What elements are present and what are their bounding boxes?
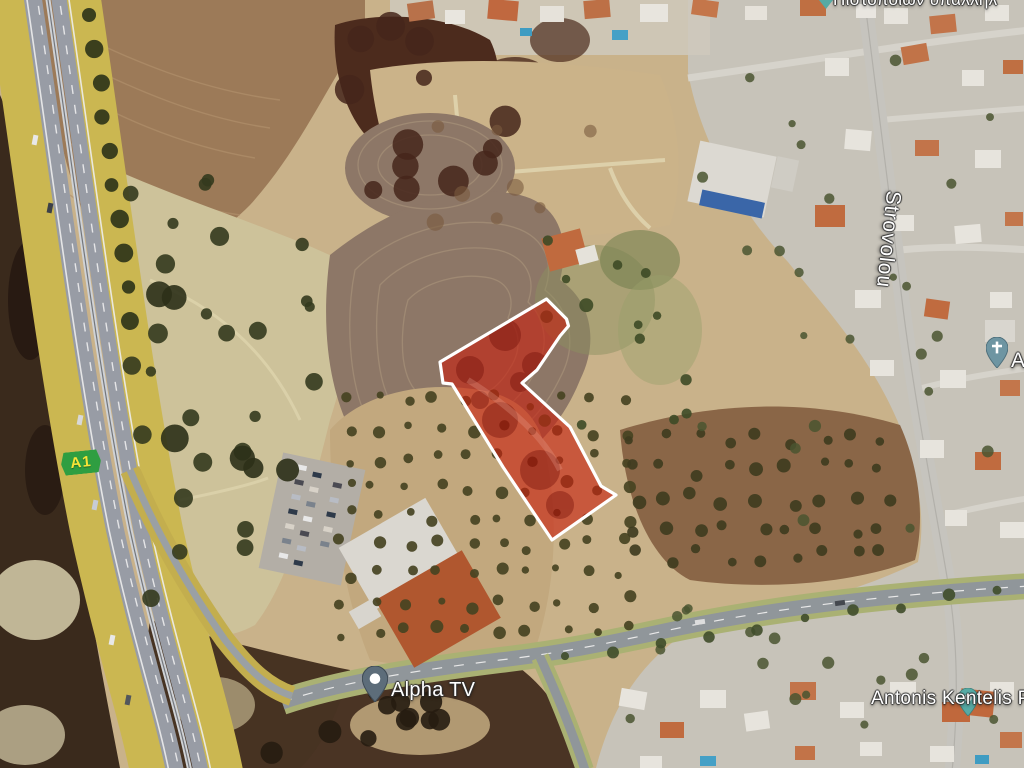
tree: [162, 285, 187, 310]
tree: [470, 515, 480, 525]
tree: [398, 622, 409, 633]
tree: [683, 487, 696, 500]
tree: [122, 280, 135, 293]
tree: [394, 176, 420, 202]
tree: [565, 625, 573, 633]
tree: [790, 500, 802, 512]
tree: [237, 539, 254, 556]
building: [870, 360, 894, 376]
tree: [798, 514, 810, 526]
tree: [123, 186, 139, 202]
building: [945, 510, 967, 526]
tree: [896, 604, 906, 614]
building: [583, 0, 610, 19]
building: [612, 30, 628, 40]
building: [640, 4, 668, 22]
tree: [373, 597, 382, 606]
building: [745, 6, 767, 20]
tree: [777, 459, 791, 473]
building: [1000, 732, 1022, 748]
building: [1000, 380, 1020, 396]
tree: [851, 492, 864, 505]
tree: [430, 620, 443, 633]
building: [962, 70, 984, 86]
building: [860, 742, 882, 756]
tree: [347, 426, 357, 436]
tree: [348, 479, 356, 487]
tree: [624, 621, 634, 631]
tree: [374, 536, 386, 548]
tree: [85, 40, 103, 58]
tree: [522, 546, 531, 555]
tree: [237, 521, 254, 538]
cross-icon: [992, 345, 1002, 348]
tree: [582, 535, 591, 544]
tree: [492, 125, 503, 136]
pin-hole: [370, 673, 381, 684]
tree: [400, 483, 407, 490]
satellite-map[interactable]: Πιστοποιών υπαλλήλ A1 Strovolou A Antoni…: [0, 0, 1024, 768]
tree: [434, 450, 443, 459]
tree: [552, 564, 559, 571]
tree: [529, 601, 539, 611]
tree: [717, 520, 727, 530]
tree: [333, 533, 344, 544]
tree: [559, 539, 570, 550]
tree: [93, 74, 110, 91]
building: [940, 370, 966, 388]
tree: [174, 489, 193, 508]
tree: [854, 546, 865, 557]
tree: [460, 624, 469, 633]
tree: [634, 320, 643, 329]
tree: [123, 356, 141, 374]
tree: [82, 8, 96, 22]
tree: [318, 720, 341, 743]
tree: [404, 422, 412, 430]
tree: [493, 515, 501, 523]
tree: [416, 70, 432, 86]
tree: [905, 524, 914, 533]
tree: [812, 495, 825, 508]
tree: [809, 420, 821, 432]
building: [700, 756, 716, 766]
tree: [653, 459, 663, 469]
tree: [110, 210, 128, 228]
tree: [182, 409, 199, 426]
cross-icon: [996, 342, 999, 354]
tree: [584, 125, 597, 138]
tree: [615, 572, 622, 579]
tree: [821, 458, 829, 466]
tree: [334, 600, 344, 610]
tree: [993, 586, 1002, 595]
tree: [902, 282, 911, 291]
tree: [524, 515, 536, 527]
tree: [824, 436, 833, 445]
tree: [624, 481, 636, 493]
tree: [584, 565, 595, 576]
tree: [943, 589, 955, 601]
tree: [793, 554, 802, 563]
tree: [534, 202, 545, 213]
tree: [518, 625, 530, 637]
building: [990, 292, 1012, 308]
building: [884, 8, 908, 24]
tree: [800, 332, 807, 339]
tree: [156, 254, 175, 273]
tree: [919, 653, 930, 664]
tree: [626, 714, 635, 723]
tree: [769, 633, 781, 645]
building: [487, 0, 519, 21]
route-badge-a1: A1: [60, 449, 102, 476]
tree: [876, 675, 885, 684]
tree: [749, 462, 763, 476]
tree: [871, 523, 882, 534]
top-edge-poi-pin-tip[interactable]: [819, 0, 833, 9]
tree: [624, 590, 636, 602]
tree: [94, 109, 109, 124]
tree: [607, 647, 619, 659]
tree: [493, 626, 506, 639]
building: [407, 0, 435, 21]
tree: [142, 589, 160, 607]
tree: [337, 634, 344, 641]
tree: [335, 75, 364, 104]
tree: [366, 481, 374, 489]
tree: [667, 557, 678, 568]
tree: [847, 604, 859, 616]
tree: [491, 212, 503, 224]
tree: [470, 538, 481, 549]
tree: [754, 555, 766, 567]
tree: [697, 422, 706, 431]
building: [825, 58, 849, 76]
tree: [816, 545, 827, 556]
tree: [199, 178, 212, 191]
tree: [660, 522, 673, 535]
tree: [305, 373, 323, 391]
building: [640, 756, 662, 768]
top-edge-poi-label[interactable]: Πιστοποιών υπαλλήλ: [833, 0, 997, 10]
tree: [757, 658, 768, 669]
tree: [624, 516, 636, 528]
tree: [364, 181, 382, 199]
alpha-tv-pin[interactable]: [362, 666, 388, 702]
tree: [801, 614, 809, 622]
tree: [431, 534, 443, 546]
tree: [437, 423, 446, 432]
tree: [872, 464, 881, 473]
tree: [613, 260, 623, 270]
tree: [860, 721, 868, 729]
tree: [375, 457, 386, 468]
tree: [425, 391, 437, 403]
tree: [346, 460, 353, 467]
tree: [691, 544, 700, 553]
tree: [421, 711, 439, 729]
tree: [844, 459, 853, 468]
tree: [193, 453, 212, 472]
tree: [172, 544, 187, 559]
tree: [845, 334, 854, 343]
tree: [360, 730, 376, 746]
tree: [507, 179, 524, 196]
tree: [376, 629, 385, 638]
tree: [461, 449, 471, 459]
tree: [148, 324, 168, 344]
tree: [102, 143, 118, 159]
tree: [400, 708, 420, 728]
tree: [377, 391, 384, 398]
tree: [210, 227, 229, 246]
tree: [728, 558, 737, 567]
church-poi-pin[interactable]: [986, 337, 1008, 368]
tree: [635, 334, 645, 344]
tree: [347, 26, 374, 53]
tree: [392, 153, 418, 179]
tree: [625, 436, 633, 444]
building: [1005, 212, 1023, 226]
building: [929, 14, 957, 35]
satellite-canvas[interactable]: [0, 0, 1024, 768]
tree: [621, 395, 631, 405]
tree: [427, 214, 444, 231]
building: [540, 6, 564, 22]
tree: [561, 652, 569, 660]
tree: [295, 238, 308, 251]
tree: [627, 527, 638, 538]
tree: [684, 604, 693, 613]
tree: [588, 430, 599, 441]
tree: [408, 566, 418, 576]
building: [1003, 60, 1023, 74]
tree: [347, 505, 356, 514]
tree: [989, 715, 998, 724]
tree: [932, 331, 943, 342]
tree: [946, 179, 956, 189]
tree: [201, 308, 212, 319]
tree: [916, 349, 927, 360]
tree: [629, 544, 640, 555]
tree: [745, 73, 754, 82]
tree: [844, 428, 856, 440]
tree: [748, 428, 760, 440]
tree: [276, 459, 299, 482]
tree: [695, 524, 708, 537]
tree: [114, 244, 133, 263]
tree: [748, 494, 762, 508]
tree: [430, 565, 440, 575]
tree: [789, 693, 801, 705]
tree: [373, 426, 385, 438]
tree: [890, 55, 902, 67]
tree: [133, 425, 152, 444]
tree: [633, 496, 647, 510]
tree: [562, 275, 570, 283]
building: [975, 755, 989, 764]
tree: [641, 268, 651, 278]
tree: [876, 437, 885, 446]
tree: [872, 544, 884, 556]
building: [1000, 522, 1024, 538]
tree: [774, 246, 785, 257]
tree: [627, 459, 638, 470]
tree: [790, 443, 801, 454]
tree: [405, 27, 434, 56]
tree: [594, 628, 602, 636]
tree: [822, 657, 834, 669]
tree: [243, 458, 263, 478]
building: [445, 10, 465, 24]
tree: [802, 691, 810, 699]
building: [815, 205, 845, 227]
tree: [372, 565, 382, 575]
tree: [662, 429, 672, 439]
tree: [682, 408, 692, 418]
tree: [218, 325, 235, 342]
tree: [400, 599, 411, 610]
tree: [161, 424, 189, 452]
alpha-tv-label[interactable]: Alpha TV: [391, 679, 475, 702]
tree: [466, 602, 478, 614]
tree: [543, 235, 553, 245]
tree: [760, 523, 772, 535]
tree: [407, 508, 415, 516]
tree: [672, 611, 682, 621]
tree: [669, 415, 679, 425]
building: [975, 150, 1001, 168]
tree: [590, 449, 599, 458]
tree: [454, 186, 470, 202]
tree: [374, 510, 383, 519]
building: [844, 129, 872, 151]
tree: [579, 298, 593, 312]
tree: [403, 453, 413, 463]
building: [954, 224, 981, 244]
building: [795, 746, 815, 760]
tree: [249, 411, 260, 422]
building: [920, 440, 944, 458]
tree: [853, 530, 862, 539]
tree: [794, 268, 803, 277]
tree: [824, 193, 834, 203]
tree: [432, 120, 445, 133]
tree: [121, 312, 139, 330]
tree: [703, 631, 715, 643]
tree: [884, 494, 896, 506]
tree: [470, 569, 479, 578]
building: [840, 702, 864, 718]
tree: [751, 624, 763, 636]
tree: [522, 566, 529, 573]
building: [700, 690, 726, 708]
tree: [924, 387, 933, 396]
building: [855, 290, 881, 308]
tree: [493, 595, 504, 606]
tree: [780, 525, 790, 535]
tree: [577, 420, 587, 430]
building: [520, 28, 532, 36]
tree: [906, 668, 918, 680]
tree: [345, 573, 356, 584]
tree: [986, 113, 994, 121]
tree: [105, 178, 119, 192]
building: [930, 746, 954, 762]
church-poi-label-partial[interactable]: A: [1011, 349, 1024, 373]
tree: [697, 172, 708, 183]
antonis-kentelis-label[interactable]: Antonis Kentelis P: [871, 688, 1024, 710]
tree: [407, 541, 418, 552]
tree: [146, 366, 156, 376]
tree: [713, 497, 727, 511]
tree: [463, 486, 473, 496]
building: [924, 298, 950, 319]
tree: [982, 445, 994, 457]
tree: [557, 391, 565, 399]
tree: [553, 599, 560, 606]
tree: [167, 218, 178, 229]
tree: [438, 479, 449, 490]
tree: [405, 397, 414, 406]
building: [660, 722, 684, 738]
tree: [653, 311, 661, 319]
building: [744, 710, 770, 731]
tree: [341, 392, 351, 402]
tree: [797, 140, 806, 149]
tree: [680, 374, 691, 385]
tree: [438, 598, 445, 605]
tree: [376, 12, 405, 41]
tree: [496, 487, 508, 499]
tree: [725, 460, 735, 470]
tree: [656, 638, 667, 649]
tree: [584, 393, 594, 403]
tree: [742, 245, 752, 255]
tree: [725, 438, 736, 449]
tree: [305, 302, 315, 312]
tree: [809, 522, 821, 534]
tree: [788, 120, 795, 127]
tree: [500, 538, 509, 547]
tree: [249, 322, 267, 340]
tree: [260, 742, 282, 764]
tree: [691, 470, 703, 482]
tree: [497, 563, 509, 575]
tree: [589, 603, 599, 613]
building: [915, 140, 939, 156]
tree: [656, 492, 670, 506]
tree: [483, 139, 502, 158]
tree: [426, 516, 437, 527]
